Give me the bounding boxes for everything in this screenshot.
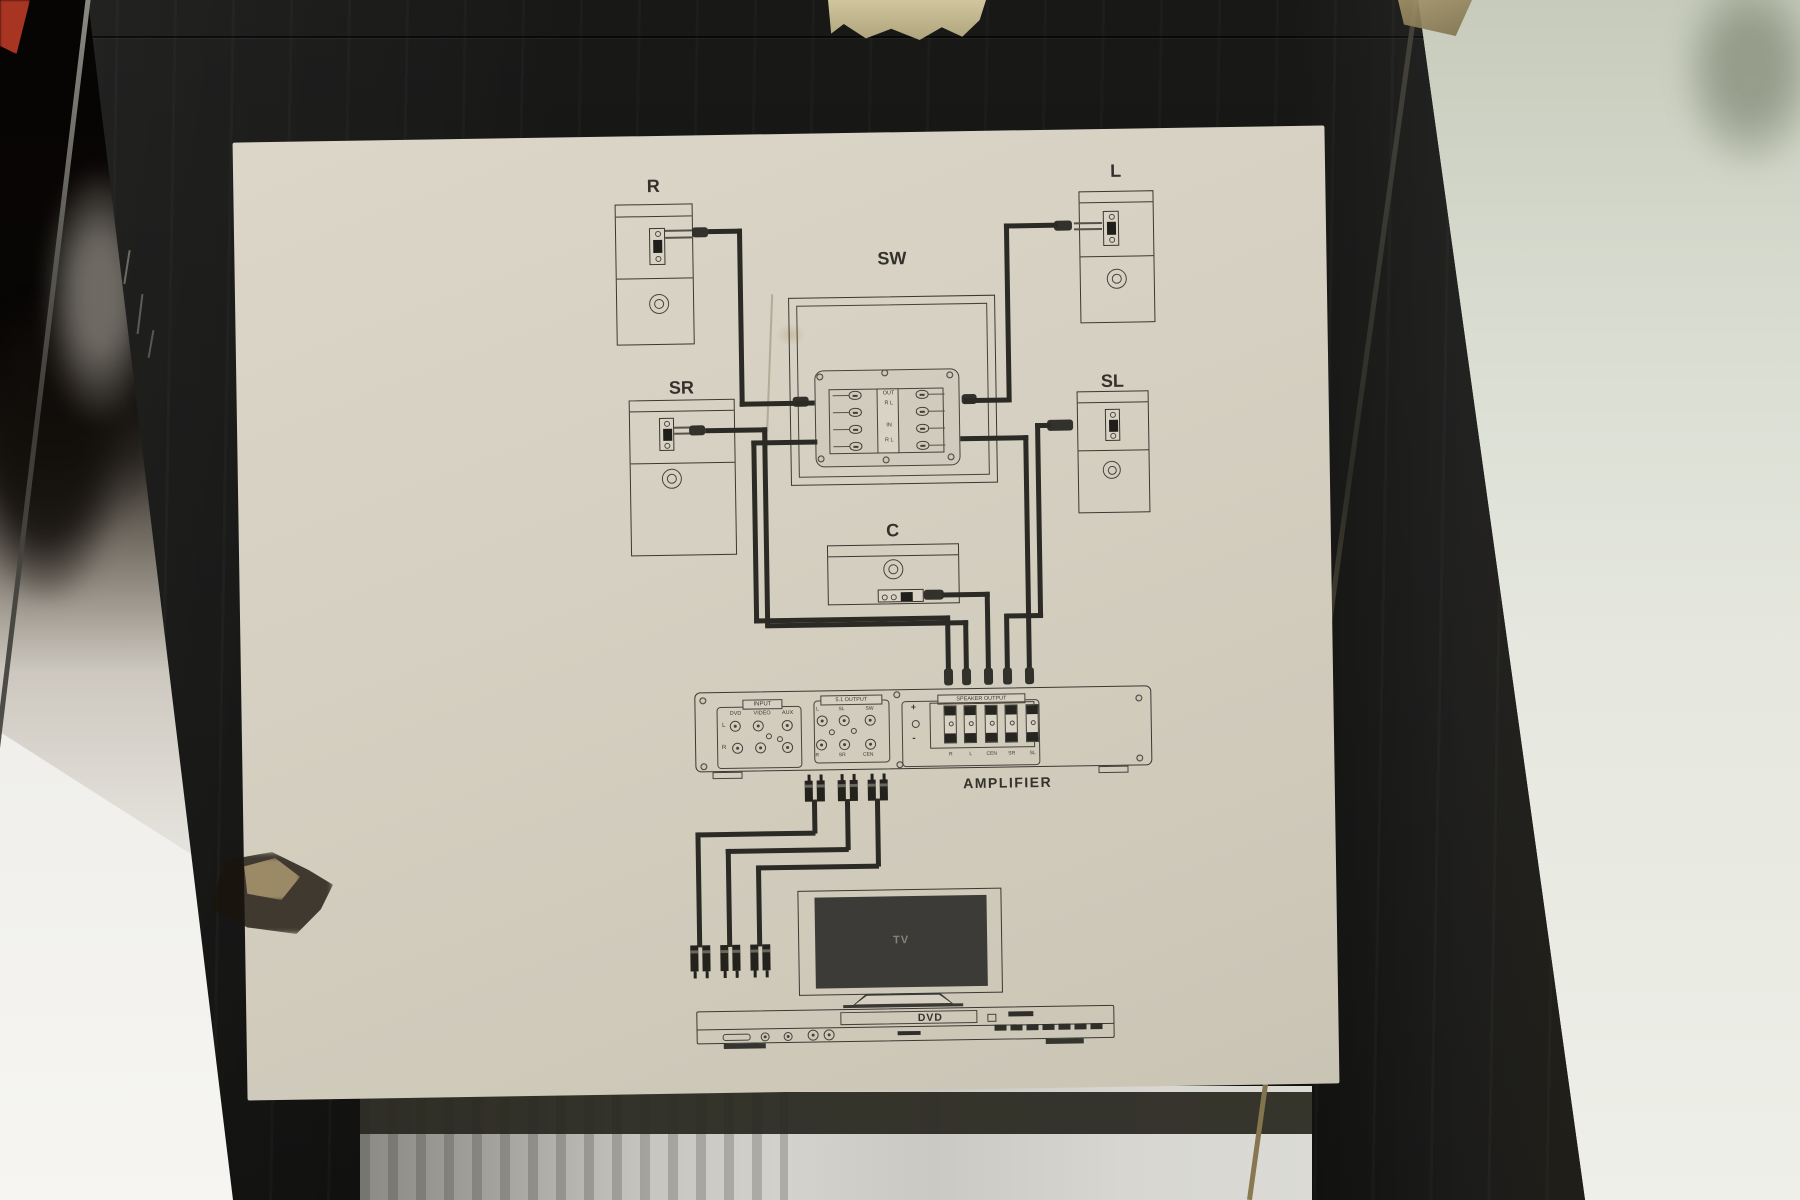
rca-jack-icon xyxy=(782,742,793,753)
bass-port-icon xyxy=(667,474,677,484)
spring-terminal-icon xyxy=(984,705,998,743)
speaker-cable xyxy=(737,229,745,407)
dvd-label: DVD xyxy=(886,1011,974,1024)
amp-channel-label: SL xyxy=(1026,750,1039,756)
screw-icon xyxy=(1136,754,1143,761)
dvd-foot xyxy=(1046,1038,1084,1044)
speaker-terminal-icon xyxy=(649,228,666,265)
spring-terminal-icon xyxy=(1004,704,1018,742)
dvd-usb-slot-icon xyxy=(723,1034,751,1041)
binding-post-icon xyxy=(849,408,862,417)
post-lead xyxy=(833,412,849,413)
cable-connector xyxy=(944,668,953,685)
dvd-knob-icon xyxy=(784,1032,793,1041)
rca-jack-icon xyxy=(839,715,850,726)
dvd-disc-tray: DVD xyxy=(840,1010,977,1025)
speaker-terminal-icon xyxy=(1103,211,1120,246)
rca-cable xyxy=(875,799,881,867)
photo-dark-band xyxy=(360,1092,1312,1134)
mini-jack-icon xyxy=(829,729,835,735)
spring-terminal-icon xyxy=(943,705,957,743)
post-lead xyxy=(929,427,945,428)
rca-jack-icon xyxy=(732,743,743,754)
amp-51-label: SW xyxy=(861,706,877,712)
screw-icon xyxy=(1135,694,1142,701)
rca-plug-pair xyxy=(750,944,771,978)
amp-input-row-label: R xyxy=(719,745,729,751)
speaker-top-line xyxy=(828,554,958,557)
screw-icon xyxy=(700,763,707,770)
rca-cable xyxy=(845,799,851,850)
binding-post-icon xyxy=(916,390,929,399)
screw-icon xyxy=(946,371,953,378)
bass-port-icon xyxy=(1107,465,1116,474)
amplifier-caption: AMPLIFIER xyxy=(938,773,1078,791)
box-bottom-product-photo xyxy=(360,1086,1312,1200)
mini-jack-icon xyxy=(766,733,772,739)
speaker-terminal-icon xyxy=(878,589,924,603)
amp-channel-label: L xyxy=(964,751,977,757)
screw-icon xyxy=(948,453,955,460)
speaker-sr-label: SR xyxy=(628,377,734,400)
rca-cable xyxy=(726,849,733,947)
speaker-top-line xyxy=(616,215,692,217)
speaker-lead xyxy=(674,432,690,434)
speaker-l-label: L xyxy=(1078,160,1153,182)
amp-input-row-label: L xyxy=(719,723,729,729)
speaker-r xyxy=(615,203,695,345)
plate-row-label: OUT xyxy=(878,390,900,396)
bass-port-icon xyxy=(654,299,664,309)
screw-hole-icon xyxy=(912,720,920,728)
speaker-terminal-icon xyxy=(1105,409,1121,441)
cable-connector xyxy=(984,668,993,685)
rca-cable xyxy=(695,832,702,947)
photo-of-speaker-box: R L xyxy=(0,0,1800,1200)
speaker-top-line xyxy=(1078,401,1148,403)
amp-51-label: R xyxy=(811,752,823,758)
rca-jack-icon xyxy=(865,715,876,726)
amp-input-title: INPUT xyxy=(742,699,782,710)
dvd-center-button xyxy=(898,1031,921,1035)
speaker-cable xyxy=(705,427,767,433)
dvd-knob-icon xyxy=(824,1029,835,1040)
minus-sign: - xyxy=(908,733,920,744)
dvd-foot xyxy=(724,1043,766,1049)
screw-icon xyxy=(881,369,888,376)
speaker-top-line xyxy=(630,410,734,413)
screw-icon xyxy=(816,373,823,380)
binding-post-icon xyxy=(916,407,929,416)
rca-plug-pair xyxy=(838,774,858,801)
rca-jack-icon xyxy=(865,739,876,750)
post-lead xyxy=(833,446,849,447)
speaker-divider xyxy=(617,277,693,279)
rca-jack-icon xyxy=(782,720,793,731)
rca-cable xyxy=(756,865,762,946)
post-lead xyxy=(833,429,849,430)
rca-plug-pair xyxy=(868,773,888,800)
spring-terminal-icon xyxy=(963,705,977,743)
tv-label: TV xyxy=(815,933,987,948)
speaker-cable xyxy=(751,440,759,623)
dvd-button-row xyxy=(994,1023,1104,1031)
rca-cable xyxy=(756,864,879,871)
screw-icon xyxy=(883,456,890,463)
speaker-r-label: R xyxy=(614,175,692,197)
speaker-cable xyxy=(1035,423,1043,616)
rca-cable xyxy=(695,831,815,838)
mini-jack-icon xyxy=(777,736,783,742)
tv-screen: TV xyxy=(814,895,987,989)
post-lead xyxy=(929,393,945,394)
spring-terminal-icon xyxy=(1025,704,1039,742)
speaker-c-label: C xyxy=(827,519,959,542)
amp-51-label: SR xyxy=(834,752,850,758)
speaker-cable xyxy=(964,397,1009,403)
diagram-label: R L xyxy=(233,125,1340,1100)
amplifier-foot xyxy=(1098,766,1128,773)
speaker-divider xyxy=(631,462,735,465)
dvd-knob-icon xyxy=(808,1030,819,1041)
post-lead xyxy=(929,444,945,445)
speaker-l xyxy=(1078,190,1155,323)
amp-51-label: SL xyxy=(833,706,849,712)
rca-cable xyxy=(812,800,818,834)
speaker-divider xyxy=(1080,255,1153,257)
subwoofer-label: SW xyxy=(854,248,929,270)
amp-51-output-title: 5.1 OUTPUT xyxy=(820,694,882,705)
cable-connector xyxy=(962,668,971,685)
rca-jack-icon xyxy=(755,742,766,753)
cable-connector xyxy=(1003,667,1012,684)
speaker-cable xyxy=(1004,223,1012,402)
speaker-cable xyxy=(985,592,991,669)
speaker-cable xyxy=(960,435,1028,441)
speaker-cable xyxy=(963,620,969,669)
mini-jack-icon xyxy=(851,728,857,734)
speaker-top-line xyxy=(1080,201,1153,203)
plate-row-label: R L xyxy=(878,400,900,406)
speaker-cable xyxy=(1023,435,1032,668)
cable-connector xyxy=(692,227,708,237)
amp-input-col-label: VIDEO xyxy=(749,710,776,716)
binding-post-icon xyxy=(849,442,862,451)
amp-channel-label: R xyxy=(944,751,957,757)
cable-connector xyxy=(689,425,705,435)
dvd-display-icon xyxy=(1008,1011,1033,1016)
amplifier-foot xyxy=(712,772,742,779)
tv: TV xyxy=(797,888,1003,996)
speaker-sl-label: SL xyxy=(1076,370,1148,392)
speaker-cable xyxy=(1004,613,1010,668)
post-lead xyxy=(929,410,945,411)
cable-connector xyxy=(1025,667,1034,684)
bass-port-icon xyxy=(1112,274,1122,284)
amp-input-col-label: AUX xyxy=(778,710,798,716)
binding-post-icon xyxy=(849,425,862,434)
box-lid-crease xyxy=(80,36,1430,38)
amp-51-label: L xyxy=(811,706,823,712)
dvd-knob-icon xyxy=(761,1032,770,1041)
speaker-cable xyxy=(762,427,770,627)
speaker-sl xyxy=(1077,390,1151,513)
speaker-sr xyxy=(629,399,737,557)
amp-51-label: CEN xyxy=(858,752,878,758)
speaker-terminal-icon xyxy=(659,418,675,451)
speaker-cable xyxy=(942,592,990,598)
amp-channel-label: SR xyxy=(1005,750,1018,756)
amp-channel-label: CEN xyxy=(982,751,1001,757)
bass-port-icon xyxy=(888,564,898,574)
rca-plug-pair xyxy=(805,774,825,801)
binding-post-icon xyxy=(916,424,929,433)
speaker-divider xyxy=(1078,449,1148,451)
plate-row-label: R L xyxy=(878,437,900,443)
screw-icon xyxy=(818,455,825,462)
plate-center-strip: OUT R L IN R L xyxy=(876,388,899,453)
speaker-cable xyxy=(1004,223,1058,229)
speaker-lead xyxy=(674,426,690,428)
rca-cable xyxy=(726,847,849,854)
rca-plug-pair xyxy=(690,945,711,979)
binding-post-icon xyxy=(849,391,862,400)
rca-plug-pair xyxy=(720,945,741,979)
post-lead xyxy=(833,395,849,396)
binding-post-icon xyxy=(916,441,929,450)
dvd-button-icon xyxy=(987,1014,996,1022)
screw-icon xyxy=(893,691,900,698)
amp-input-col-label: DVD xyxy=(725,711,747,717)
speaker-cable xyxy=(751,439,817,445)
screw-icon xyxy=(699,697,706,704)
plus-sign: + xyxy=(907,702,919,712)
speaker-cable xyxy=(1006,613,1043,619)
plate-row-label: IN xyxy=(878,422,900,428)
rca-jack-icon xyxy=(839,739,850,750)
